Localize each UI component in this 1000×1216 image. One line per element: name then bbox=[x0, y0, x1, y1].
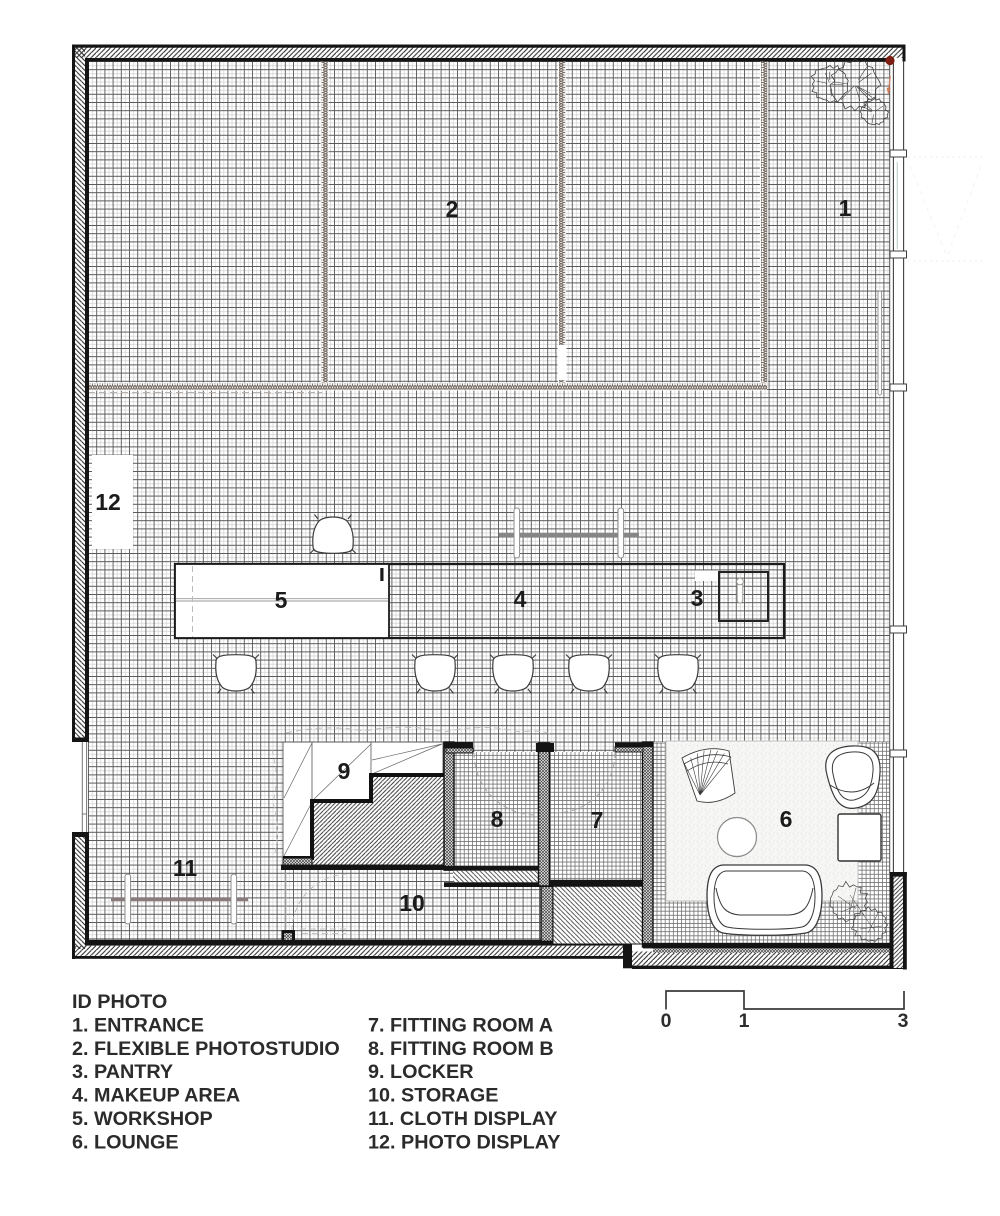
svg-text:10. STORAGE: 10. STORAGE bbox=[368, 1085, 498, 1107]
svg-text:11. CLOTH DISPLAY: 11. CLOTH DISPLAY bbox=[368, 1108, 557, 1130]
svg-text:7. FITTING ROOM A: 7. FITTING ROOM A bbox=[368, 1014, 553, 1036]
svg-text:3. PANTRY: 3. PANTRY bbox=[72, 1061, 173, 1083]
svg-text:7: 7 bbox=[591, 807, 604, 833]
svg-text:4. MAKEUP AREA: 4. MAKEUP AREA bbox=[72, 1085, 240, 1107]
svg-text:12. PHOTO DISPLAY: 12. PHOTO DISPLAY bbox=[368, 1131, 560, 1153]
svg-text:4: 4 bbox=[514, 586, 527, 612]
svg-text:2: 2 bbox=[446, 196, 459, 222]
svg-text:2. FLEXIBLE PHOTOSTUDIO: 2. FLEXIBLE PHOTOSTUDIO bbox=[72, 1038, 340, 1060]
svg-text:11: 11 bbox=[173, 855, 198, 881]
svg-text:9: 9 bbox=[338, 758, 351, 784]
svg-text:8. FITTING ROOM B: 8. FITTING ROOM B bbox=[368, 1038, 554, 1060]
svg-text:ID PHOTO: ID PHOTO bbox=[72, 991, 167, 1013]
svg-text:1. ENTRANCE: 1. ENTRANCE bbox=[72, 1014, 204, 1036]
svg-text:6: 6 bbox=[780, 806, 793, 832]
svg-text:3: 3 bbox=[898, 1010, 909, 1032]
svg-text:1: 1 bbox=[839, 195, 852, 221]
svg-text:10: 10 bbox=[399, 890, 425, 916]
svg-text:5. WORKSHOP: 5. WORKSHOP bbox=[72, 1108, 213, 1130]
svg-text:9. LOCKER: 9. LOCKER bbox=[368, 1061, 474, 1083]
svg-text:12: 12 bbox=[95, 489, 121, 515]
svg-text:6. LOUNGE: 6. LOUNGE bbox=[72, 1131, 179, 1153]
svg-text:3: 3 bbox=[691, 585, 704, 611]
svg-text:0: 0 bbox=[661, 1010, 672, 1032]
svg-text:1: 1 bbox=[739, 1010, 750, 1032]
svg-text:8: 8 bbox=[491, 806, 504, 832]
svg-text:5: 5 bbox=[275, 587, 288, 613]
